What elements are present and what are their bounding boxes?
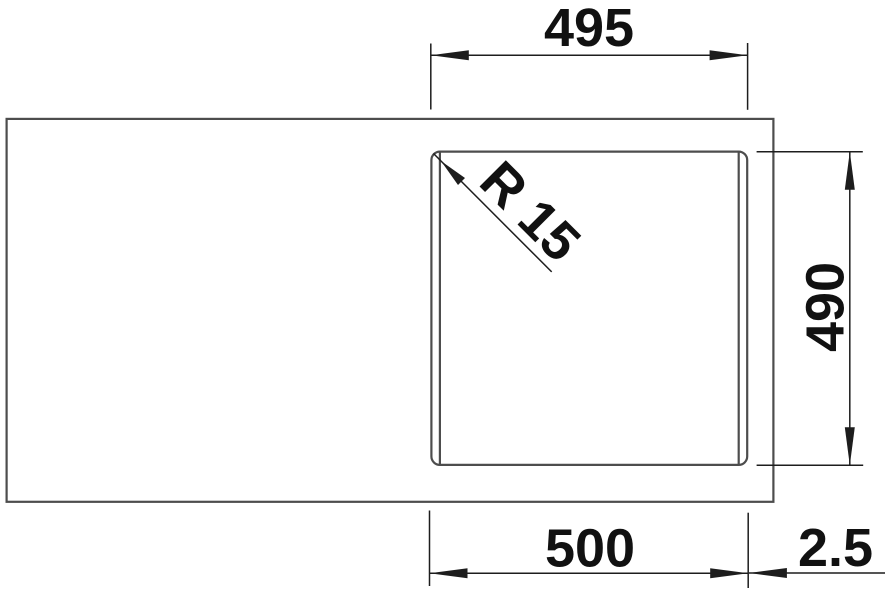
svg-text:490: 490 — [796, 262, 856, 352]
svg-text:500: 500 — [545, 519, 635, 579]
svg-text:495: 495 — [544, 0, 634, 58]
svg-text:2.5: 2.5 — [798, 518, 873, 578]
svg-text:R 15: R 15 — [469, 150, 592, 273]
